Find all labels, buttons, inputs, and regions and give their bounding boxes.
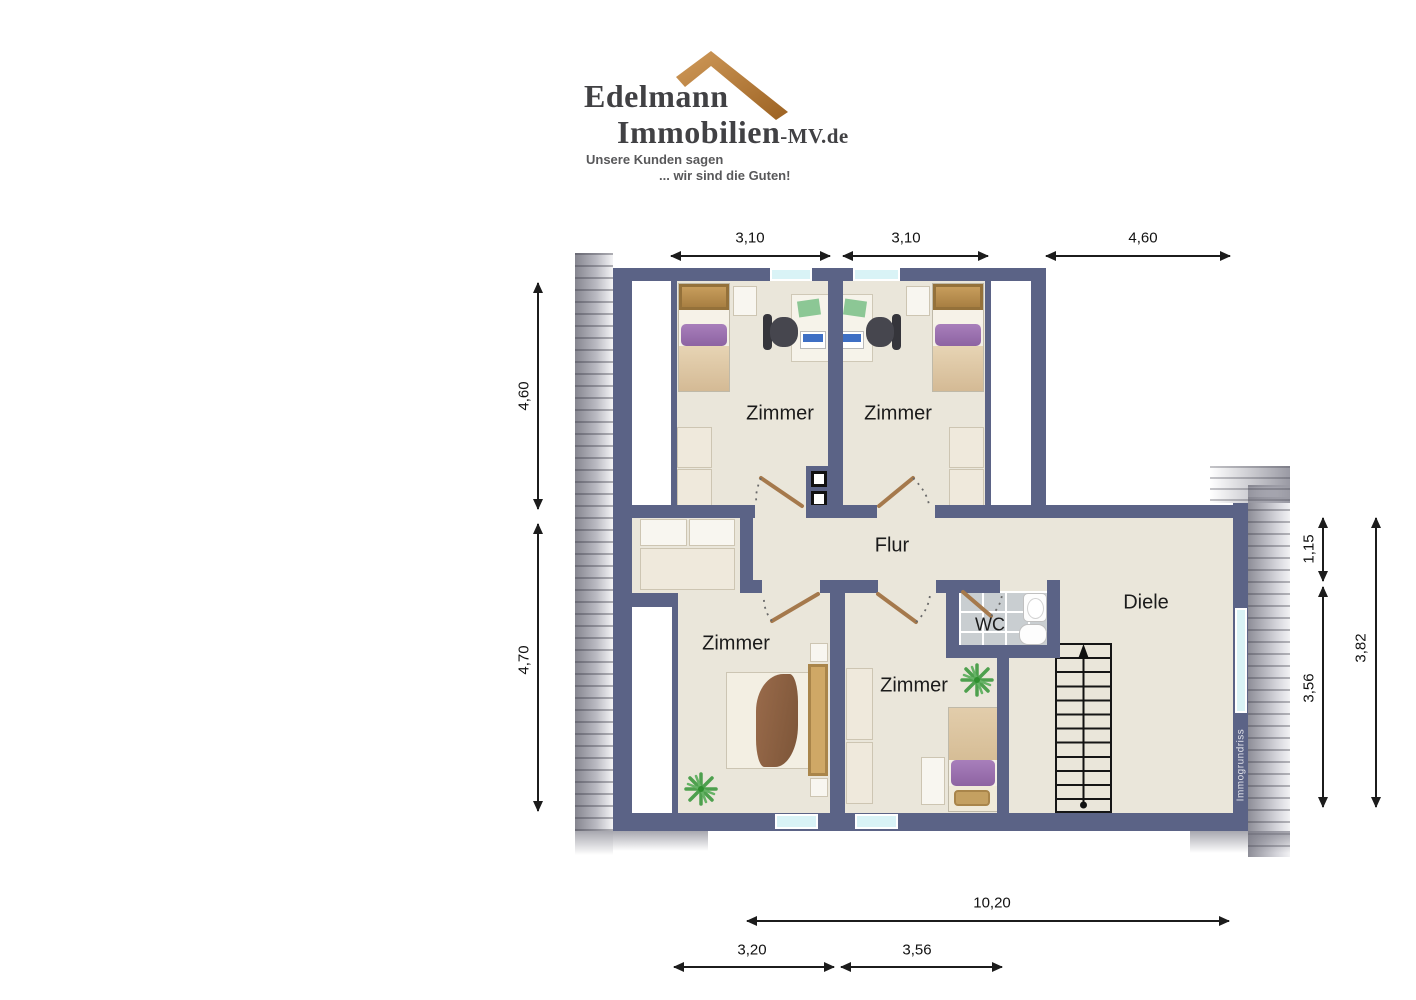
wall-left-outer xyxy=(613,268,632,831)
wall-wc-left xyxy=(946,593,959,645)
dimension-arrow-top-3 xyxy=(1046,255,1230,257)
bed-blanket xyxy=(949,708,997,760)
dimension-arrow-top-1 xyxy=(671,255,830,257)
roof-hatch-top-right xyxy=(1210,466,1290,503)
dimension-label-right-1: 1,15 xyxy=(1301,534,1318,563)
wall-hall-bottom-2 xyxy=(820,580,878,593)
roof-hatch-right xyxy=(1248,485,1290,857)
room-label-zimmer-bottom-middle: Zimmer xyxy=(880,675,948,698)
shadow-bottom-left-2 xyxy=(613,831,708,851)
dimension-arrow-right-1 xyxy=(1322,518,1324,581)
stairs xyxy=(1055,643,1112,813)
knee-wall-bottom-left xyxy=(672,607,678,813)
dimension-arrow-right-2 xyxy=(1322,587,1324,807)
niche-closet-3 xyxy=(640,548,735,590)
shadow-bottom-left xyxy=(575,831,613,855)
window-right xyxy=(1235,608,1247,713)
sink-basin xyxy=(1027,598,1044,619)
wall-bm-right xyxy=(997,658,1009,813)
dimension-label-top-3: 4,60 xyxy=(1128,230,1157,247)
roof-hatch-left xyxy=(575,253,613,831)
watermark-text: Immogrundriss xyxy=(1236,729,1247,802)
knee-strip-top-right xyxy=(991,281,1031,505)
wall-hall-bottom-1 xyxy=(740,580,762,593)
wardrobe-bm-1 xyxy=(846,668,873,740)
wardrobe-top-left-1 xyxy=(677,427,712,468)
floor-plan-canvas: Edelmann Immobilien-MV.de Unsere Kunden … xyxy=(0,0,1416,1000)
niche-closet-2 xyxy=(689,519,735,546)
dimension-arrow-bottom-3 xyxy=(841,966,1002,968)
desk-paper-icon xyxy=(843,299,867,318)
room-label-zimmer-bottom-left: Zimmer xyxy=(702,633,770,656)
dresser-bm xyxy=(921,757,945,805)
nightstand-top-left xyxy=(733,286,757,316)
bed-sheet xyxy=(679,310,729,324)
bed-top-left xyxy=(678,283,730,392)
bed-pillow xyxy=(935,324,981,346)
dimension-arrow-bottom-1 xyxy=(747,920,1229,922)
nightstand-bl-1 xyxy=(810,643,828,662)
chimney-flue-1 xyxy=(811,471,827,487)
dimension-label-top-2: 3,10 xyxy=(891,230,920,247)
brand-name-suffix: -MV.de xyxy=(780,124,849,148)
wall-hall-top-a xyxy=(613,505,755,518)
wardrobe-top-right-1 xyxy=(949,427,984,468)
wall-knee-cap xyxy=(613,593,678,607)
dimension-label-left-2: 4,70 xyxy=(516,645,533,674)
brand-name-line1: Edelmann xyxy=(584,78,728,115)
dimension-arrow-right-3 xyxy=(1375,518,1377,807)
brand-tagline-2: ... wir sind die Guten! xyxy=(659,168,790,183)
window-top-1 xyxy=(770,268,812,281)
brand-name-line2-main: Immobilien xyxy=(617,114,780,150)
knee-strip-top-left xyxy=(632,281,671,505)
room-label-zimmer-top-left: Zimmer xyxy=(746,403,814,426)
dimension-arrow-bottom-2 xyxy=(674,966,834,968)
bed-blanket xyxy=(933,346,983,391)
window-bottom-1 xyxy=(775,814,818,829)
bed-foot xyxy=(949,786,997,811)
brand-name-line2: Immobilien-MV.de xyxy=(617,114,849,151)
bed-headboard xyxy=(933,284,983,310)
dimension-label-top-1: 3,10 xyxy=(735,230,764,247)
toilet-icon xyxy=(1019,624,1047,645)
bed-sheet xyxy=(933,310,983,324)
office-chair-seat xyxy=(770,317,798,347)
knee-strip-bottom-left xyxy=(632,607,672,813)
window-bottom-2 xyxy=(855,814,898,829)
dimension-label-bottom-3: 3,56 xyxy=(902,942,931,959)
wardrobe-bm-2 xyxy=(846,742,873,804)
bed-footboard xyxy=(954,790,990,806)
wall-hall-top-c xyxy=(935,505,1248,518)
double-bed-headboard xyxy=(808,664,828,776)
dimension-label-left-1: 4,60 xyxy=(516,381,533,410)
niche-closet-1 xyxy=(640,519,687,546)
dimension-label-right-3: 3,82 xyxy=(1353,633,1370,662)
wall-wc-top xyxy=(936,580,1000,593)
wardrobe-top-left-2 xyxy=(677,469,712,509)
office-chair-seat xyxy=(866,317,894,347)
sink-icon xyxy=(1023,593,1047,622)
dimension-label-bottom-2: 3,20 xyxy=(737,942,766,959)
wall-niche-right xyxy=(740,518,753,580)
room-label-flur: Flur xyxy=(875,535,909,558)
wall-topsection-right xyxy=(1031,268,1046,518)
bed-headboard xyxy=(679,284,729,310)
wall-bottom xyxy=(613,813,1248,831)
wall-hall-top-b xyxy=(806,505,877,518)
wall-wc-bottom xyxy=(946,645,1060,658)
bed-pillow xyxy=(951,760,995,786)
knee-wall-top-right xyxy=(985,281,991,505)
room-label-wc: WC xyxy=(975,615,1005,636)
bed-top-right xyxy=(932,283,984,392)
room-label-zimmer-top-right: Zimmer xyxy=(864,403,932,426)
room-label-diele: Diele xyxy=(1123,592,1169,615)
dimension-arrow-top-2 xyxy=(843,255,988,257)
bed-blanket xyxy=(679,346,729,391)
dimension-arrow-left-1 xyxy=(537,283,539,509)
laptop-screen xyxy=(841,334,861,342)
shadow-bottom-right xyxy=(1190,831,1290,853)
nightstand-top-right xyxy=(906,286,930,316)
wall-divider-bottom-rooms xyxy=(830,593,845,813)
dimension-arrow-left-2 xyxy=(537,524,539,811)
brand-tagline-1: Unsere Kunden sagen xyxy=(586,152,723,167)
bed-pillow xyxy=(681,324,727,346)
window-top-2 xyxy=(853,268,900,281)
dimension-label-bottom-1: 10,20 xyxy=(973,895,1011,912)
bed-bottom-middle xyxy=(948,707,998,812)
wall-top xyxy=(613,268,1046,281)
desk-paper-icon xyxy=(797,299,821,318)
laptop-screen xyxy=(803,334,823,342)
wardrobe-top-right-2 xyxy=(949,469,984,509)
double-bed-duvet xyxy=(756,674,798,767)
wall-divider-top-rooms xyxy=(828,281,843,468)
knee-wall-top-left xyxy=(671,281,677,505)
dimension-label-right-2: 3,56 xyxy=(1301,673,1318,702)
laptop-icon xyxy=(800,331,826,349)
nightstand-bl-2 xyxy=(810,778,828,797)
